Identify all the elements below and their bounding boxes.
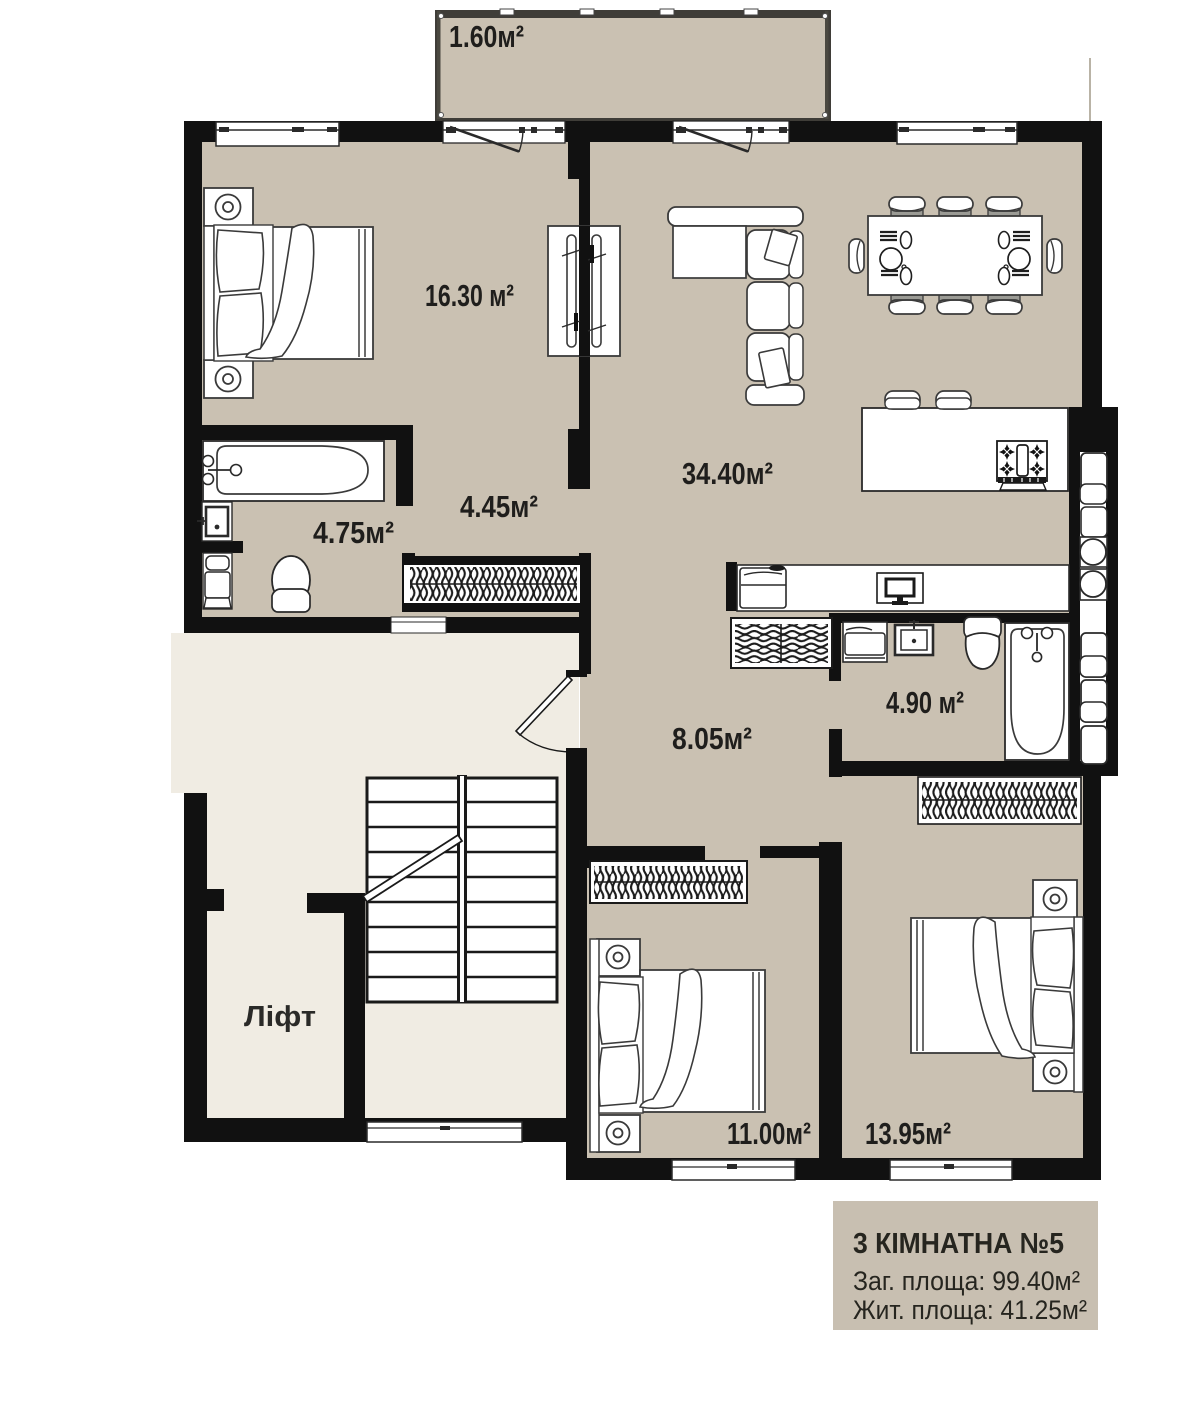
svg-text:4.75м²: 4.75м² <box>313 515 394 550</box>
svg-text:1.60м²: 1.60м² <box>449 19 524 54</box>
svg-text:16.30 м²: 16.30 м² <box>425 278 514 313</box>
svg-text:34.40м²: 34.40м² <box>682 456 773 491</box>
svg-text:Жит. площа: 41.25м²: Жит. площа: 41.25м² <box>853 1295 1087 1325</box>
svg-text:8.05м²: 8.05м² <box>672 721 752 756</box>
svg-text:4.90 м²: 4.90 м² <box>886 685 964 720</box>
svg-text:Ліфт: Ліфт <box>244 1001 316 1033</box>
svg-text:3 КІМНАТНА №5: 3 КІМНАТНА №5 <box>853 1228 1064 1260</box>
svg-text:4.45м²: 4.45м² <box>460 489 538 524</box>
svg-text:13.95м²: 13.95м² <box>865 1116 951 1151</box>
svg-text:11.00м²: 11.00м² <box>727 1116 811 1151</box>
svg-text:Заг. площа: 99.40м²: Заг. площа: 99.40м² <box>853 1266 1080 1296</box>
